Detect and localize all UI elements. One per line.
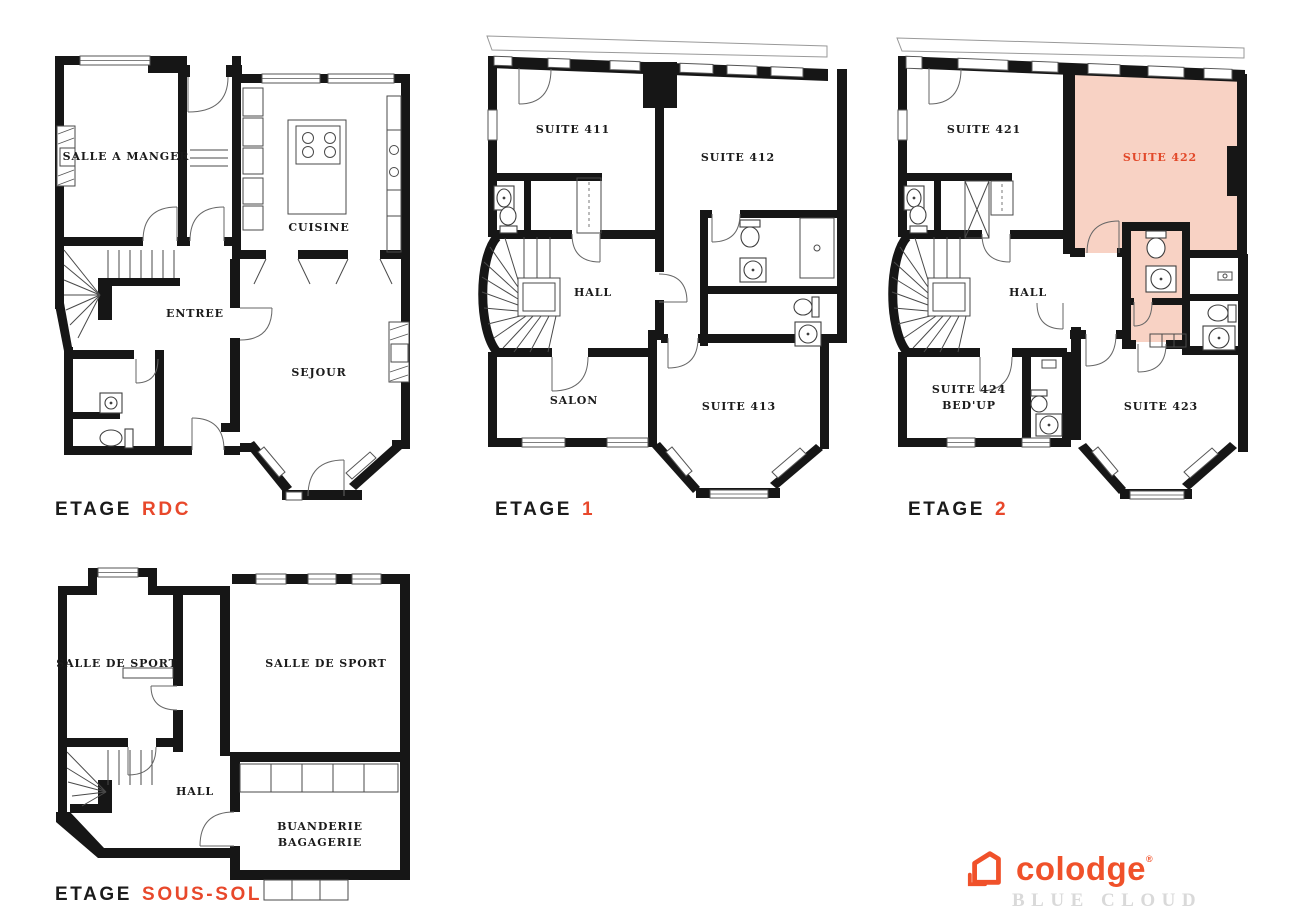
colodge-logo: colodge® BLUE CLOUD [966,848,1196,910]
staircase-etage-1 [482,237,560,352]
terrace-outline [487,36,827,57]
room-label-hall-sous-sol: HALL [176,784,214,800]
floor-label-etage-1: ETAGE1 [495,499,595,521]
bay-wall-left [246,441,292,493]
funnel-openings [254,259,392,284]
floor-label-etage-2: ETAGE2 [908,499,1008,521]
room-label-hall-etage-1: HALL [574,285,612,301]
floor-label-prefix: ETAGE [908,499,985,520]
door-gap [230,812,240,846]
staircase-rdc [64,250,174,338]
room-label-suite-422: SUITE 422 [1123,150,1197,166]
bathroom-suite-411 [494,178,601,233]
entry-steps [190,150,228,166]
room-label-salle-de-sport-2: SALLE DE SPORT [265,656,386,672]
room-label-salon: SALON [550,393,598,409]
bay-wall-left [652,442,700,493]
room-label-line-1: BUANDERIE [277,820,363,833]
bathroom-suite-413 [794,297,821,346]
floorplans-drawing [0,0,1303,915]
room-label-suite-412: SUITE 412 [701,150,775,166]
room-label-line-1: SUITE 424 [932,383,1006,396]
logo-trademark: ® [1146,854,1153,864]
room-label-buanderie: BUANDERIEBAGAGERIE [277,819,363,851]
room-label-salle-de-sport-1: SALLE DE SPORT [56,656,177,672]
floor-label-value: SOUS-SOL [142,884,262,905]
floor-label-value: RDC [142,499,191,520]
kitchen-island [288,120,346,214]
room-label-entree: ENTREE [166,306,224,322]
room-label-suite-411: SUITE 411 [536,122,610,138]
bathroom-suite-421 [904,181,1013,238]
room-label-line-2: BED'UP [942,399,996,412]
room-label-hall-etage-2: HALL [1009,285,1047,301]
fireplace-sejour [389,322,409,382]
floorplan-etage-2 [892,38,1248,499]
room-label-suite-413: SUITE 413 [702,399,776,415]
room-label-sejour: SEJOUR [291,365,346,381]
terrace-outline [897,38,1244,58]
bay-wall-left [1078,443,1126,494]
room-label-cuisine: CUISINE [288,220,349,236]
bathroom-suite-412 [740,218,834,282]
floor-label-prefix: ETAGE [495,499,572,520]
room-label-suite-423: SUITE 423 [1124,399,1198,415]
bathroom-suite-423 [1203,272,1236,350]
floor-label-prefix: ETAGE [55,884,132,905]
room-label-salle-a-manger: SALLE A MANGER [63,149,190,165]
room-label-line-2: BAGAGERIE [278,836,362,849]
floor-label-rdc: ETAGERDC [55,499,191,521]
logo-brand: colodge® [1016,852,1153,885]
colodge-house-icon [966,848,1008,888]
floor-label-sous-sol: ETAGESOUS-SOL [55,884,262,906]
floor-label-prefix: ETAGE [55,499,132,520]
floorplan-sheet: SALLE A MANGER CUISINE ENTREE SEJOUR SUI… [0,0,1303,915]
room-label-suite-421: SUITE 421 [947,122,1021,138]
logo-subtitle: BLUE CLOUD [1012,890,1196,912]
floorplan-etage-1 [482,36,847,498]
floor-label-value: 2 [995,499,1008,520]
floor-label-value: 1 [582,499,595,520]
bathroom-suite-424 [1031,360,1062,436]
wc-toilet [100,429,133,448]
room-label-suite-424: SUITE 424BED'UP [932,382,1006,414]
floorplan-rdc [55,56,410,500]
staircase-etage-2 [892,237,970,352]
logo-brand-text: colodge [1016,850,1146,887]
wc-sink [100,393,122,413]
